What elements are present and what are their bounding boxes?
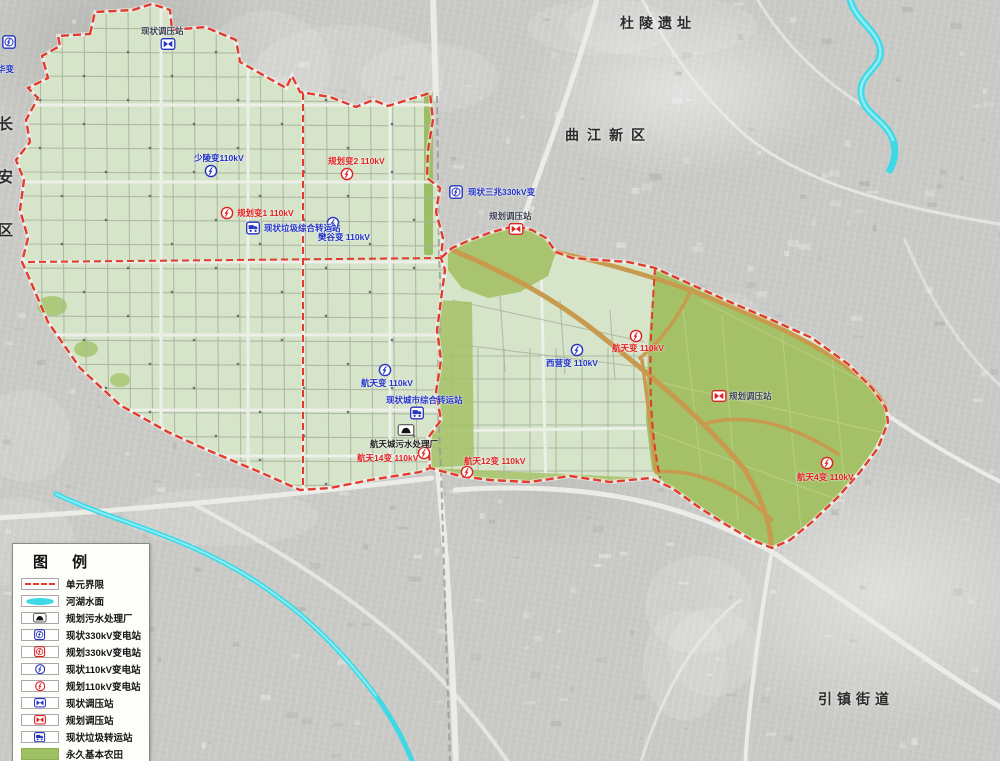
marker-substation-110-xiying <box>571 344 584 357</box>
marker-substation-110-hangtian <box>379 364 392 377</box>
legend-swatch-reg-red <box>21 714 59 726</box>
substation-110-icon <box>821 457 834 474</box>
marker-substation-110-hangtian-4 <box>821 457 834 470</box>
legend-item-regulator-existing: 现状调压站 <box>21 696 143 710</box>
legend-item-permanent-farmland: 永久基本农田 <box>21 747 143 761</box>
regulator-station-icon <box>712 389 727 406</box>
legend-item-label: 现状垃圾转运站 <box>66 730 133 744</box>
legend-item-regulator-planned: 规划调压站 <box>21 713 143 727</box>
substation-330-icon <box>34 629 45 640</box>
legend-item-label: 规划110kV变电站 <box>66 679 140 693</box>
legend-item-label: 规划330kV变电站 <box>66 645 141 659</box>
legend-swatch-water <box>21 595 59 607</box>
legend-item-sewage-plant-planned: 规划污水处理厂 <box>21 611 143 625</box>
substation-110-icon <box>35 664 45 674</box>
sewage-plant-icon <box>398 423 415 440</box>
marker-substation-110-planned-2 <box>341 168 354 181</box>
legend-item-label: 规划调压站 <box>66 713 114 727</box>
marker-regulator-planned-north <box>509 223 524 235</box>
marker-substation-110-fangu <box>327 217 340 230</box>
substation-110-icon <box>205 165 218 182</box>
legend-title: 图 例 <box>33 551 143 572</box>
legend-item-label: 现状调压站 <box>66 696 114 710</box>
garbage-transfer-icon <box>410 407 424 424</box>
substation-330-icon <box>2 36 16 53</box>
legend-swatch-farmland <box>21 748 59 760</box>
marker-substation-110-shaoling <box>205 165 218 178</box>
substation-110-icon <box>630 330 643 347</box>
legend-swatch-sub110-blue <box>21 663 59 675</box>
substation-110-icon <box>341 168 354 185</box>
legend-item-substation-330-existing: 现状330kV变电站 <box>21 628 143 642</box>
legend-item-label: 单元界限 <box>66 577 104 591</box>
legend-item-garbage-transfer-existing: 现状垃圾转运站 <box>21 730 143 744</box>
legend-panel: 图 例 单元界限河湖水面规划污水处理厂现状330kV变电站规划330kV变电站现… <box>12 543 150 761</box>
legend-item-label: 现状110kV变电站 <box>66 662 140 676</box>
legend-item-label: 规划污水处理厂 <box>66 611 133 625</box>
substation-110-icon <box>221 207 234 224</box>
marker-regulator-planned-east <box>712 390 727 402</box>
marker-substation-west-edge <box>2 35 16 49</box>
legend-item-label: 永久基本农田 <box>66 747 123 761</box>
garbage-transfer-icon <box>246 222 260 239</box>
legend-rows: 单元界限河湖水面规划污水处理厂现状330kV变电站规划330kV变电站现状110… <box>21 577 143 761</box>
marker-substation-110-hangtian-12 <box>461 466 474 479</box>
marker-substation-330-sanzhao <box>449 185 463 199</box>
marker-substation-110-planned-1 <box>221 207 234 220</box>
substation-110-icon <box>418 447 431 464</box>
legend-item-label: 现状330kV变电站 <box>66 628 141 642</box>
legend-swatch-sub110-red <box>21 680 59 692</box>
legend-item-unit-boundary: 单元界限 <box>21 577 143 591</box>
legend-swatch-sub330-blue <box>21 629 59 641</box>
marker-substation-110-hangtian-14 <box>418 447 431 460</box>
legend-swatch-sub330-red <box>21 646 59 658</box>
marker-regulator-existing-north <box>161 38 176 50</box>
sewage-plant-icon <box>33 613 47 623</box>
substation-330-icon <box>449 186 463 203</box>
legend-item-water-surface: 河湖水面 <box>21 594 143 608</box>
legend-swatch-garbage-blue <box>21 731 59 743</box>
markers-layer <box>0 0 1000 761</box>
marker-substation-110-hangtian-planned <box>630 330 643 343</box>
substation-110-icon <box>327 217 340 234</box>
legend-swatch-sewage <box>21 612 59 624</box>
legend-swatch-reg-blue <box>21 697 59 709</box>
legend-swatch-dashed <box>21 578 59 590</box>
regulator-station-icon <box>509 222 524 239</box>
regulator-station-icon <box>34 698 46 708</box>
legend-item-substation-110-planned: 规划110kV变电站 <box>21 679 143 693</box>
planning-map: 华变现状调压站少陵变110kV规划变2 110kV规划变1 110kV现状垃圾综… <box>0 0 1000 761</box>
regulator-station-icon <box>34 715 46 725</box>
marker-garbage-transfer-city <box>410 407 424 420</box>
substation-110-icon <box>461 466 474 483</box>
legend-item-label: 河湖水面 <box>66 594 104 608</box>
regulator-station-icon <box>161 37 176 54</box>
substation-110-icon <box>35 681 45 691</box>
legend-item-substation-330-planned: 规划330kV变电站 <box>21 645 143 659</box>
legend-item-substation-110-existing: 现状110kV变电站 <box>21 662 143 676</box>
substation-110-icon <box>379 364 392 381</box>
marker-sewage-plant-hangtian <box>398 424 415 436</box>
marker-garbage-transfer-existing <box>246 222 260 235</box>
substation-330-icon <box>34 646 45 657</box>
garbage-transfer-icon <box>34 732 45 742</box>
substation-110-icon <box>571 344 584 361</box>
